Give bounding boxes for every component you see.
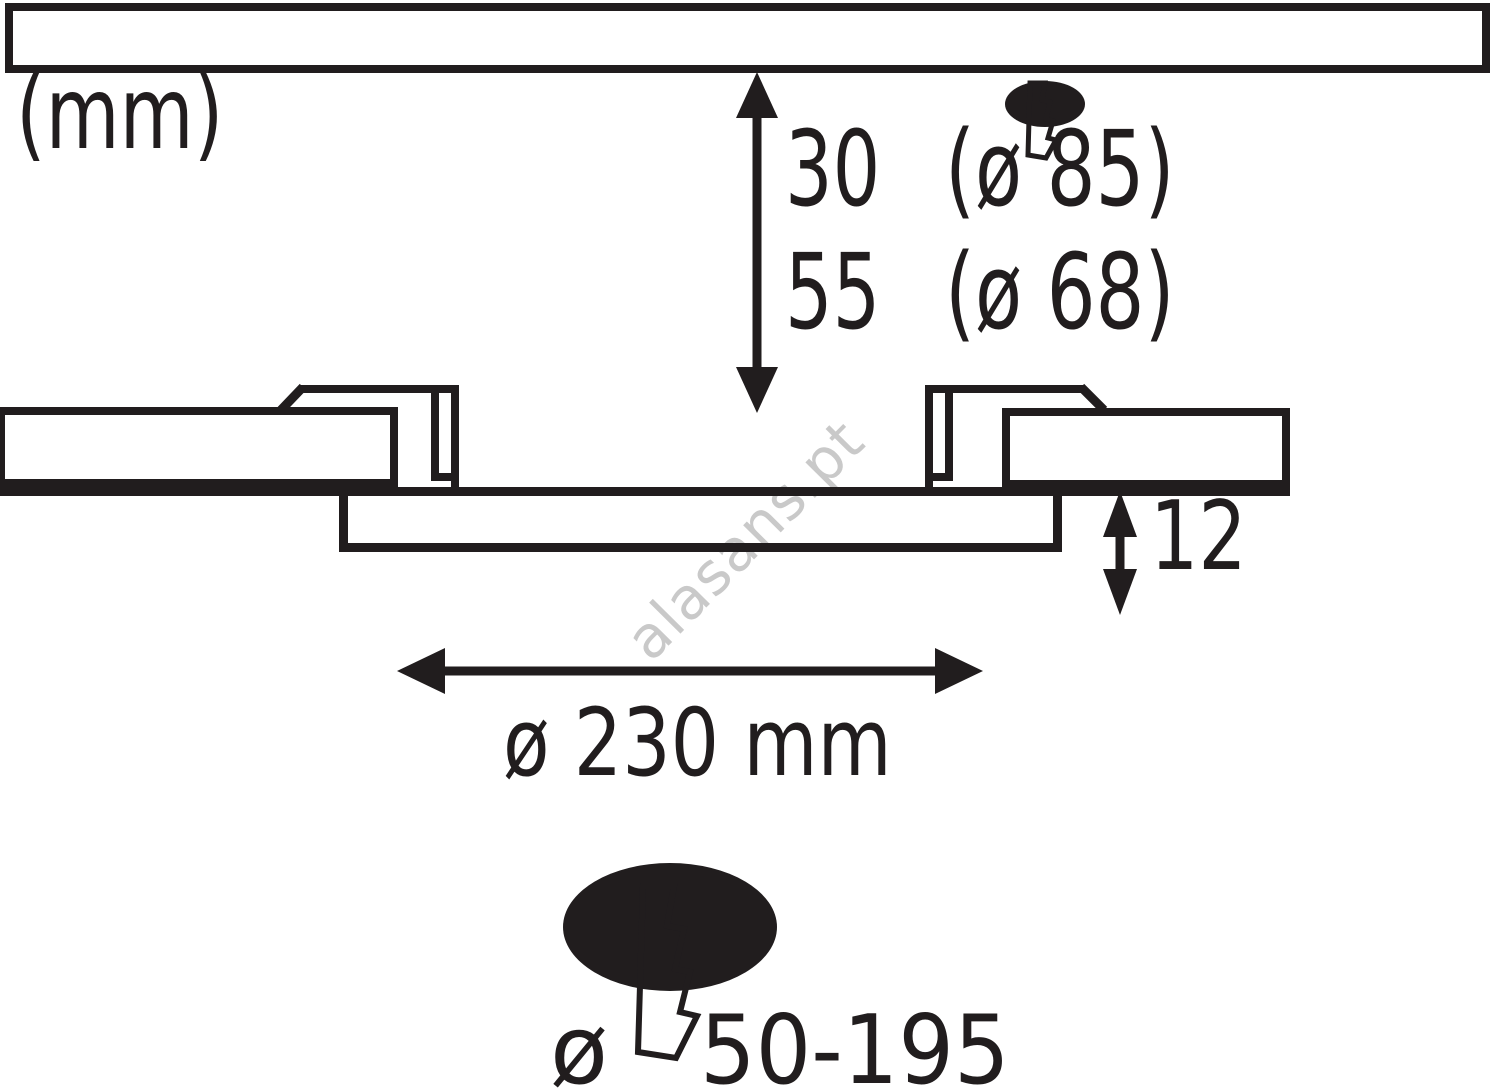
panel-body	[0, 492, 1290, 548]
transformer-lightning-icon-bottom	[563, 863, 777, 1058]
spring-clip-right	[925, 385, 1104, 491]
mounting-surface-left	[1, 411, 394, 483]
protrusion-arrow	[1103, 491, 1137, 615]
mounting-surface-right	[1006, 412, 1286, 484]
recess-depth-arrow	[736, 72, 778, 413]
spring-clip-left	[281, 385, 459, 491]
transformer-lightning-icon-top	[1005, 81, 1085, 158]
cutout-diameter-arrow	[397, 648, 983, 694]
ceiling-slab	[9, 7, 1486, 69]
installation-diagram: alasans.pt (mm) 30 (ø 85) 55 (ø 68) 12 ø…	[0, 0, 1494, 1089]
diagram-linework	[0, 0, 1494, 1089]
